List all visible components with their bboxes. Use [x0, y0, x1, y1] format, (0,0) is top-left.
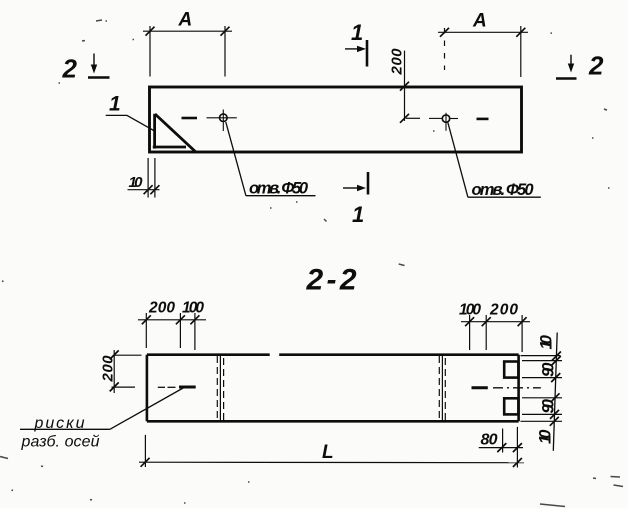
svg-text:2: 2: [588, 51, 604, 81]
svg-text:90: 90: [540, 398, 558, 413]
svg-text:10: 10: [537, 429, 555, 444]
svg-text:100: 100: [459, 302, 481, 319]
svg-text:200: 200: [489, 302, 518, 319]
svg-text:10: 10: [129, 174, 144, 191]
svg-text:L: L: [322, 442, 334, 463]
svg-text:200: 200: [389, 48, 406, 76]
svg-text:A: A: [472, 11, 487, 32]
svg-text:200: 200: [148, 300, 175, 317]
svg-text:1: 1: [352, 202, 364, 227]
svg-text:200: 200: [100, 355, 117, 383]
svg-text:90: 90: [540, 362, 558, 377]
svg-text:A: A: [178, 10, 193, 31]
svg-text:риски: риски: [34, 415, 85, 432]
svg-text:10: 10: [538, 334, 556, 349]
svg-text:1: 1: [351, 20, 363, 45]
svg-text:2: 2: [62, 54, 78, 84]
svg-text:80: 80: [481, 432, 498, 449]
svg-text:разб. осей: разб. осей: [21, 434, 100, 451]
svg-text:отв. Ф50: отв. Ф50: [249, 180, 309, 198]
svg-text:отв. Ф50: отв. Ф50: [472, 181, 535, 199]
svg-text:1: 1: [109, 93, 121, 116]
svg-text:2-2: 2-2: [306, 264, 357, 297]
svg-text:100: 100: [182, 300, 204, 317]
